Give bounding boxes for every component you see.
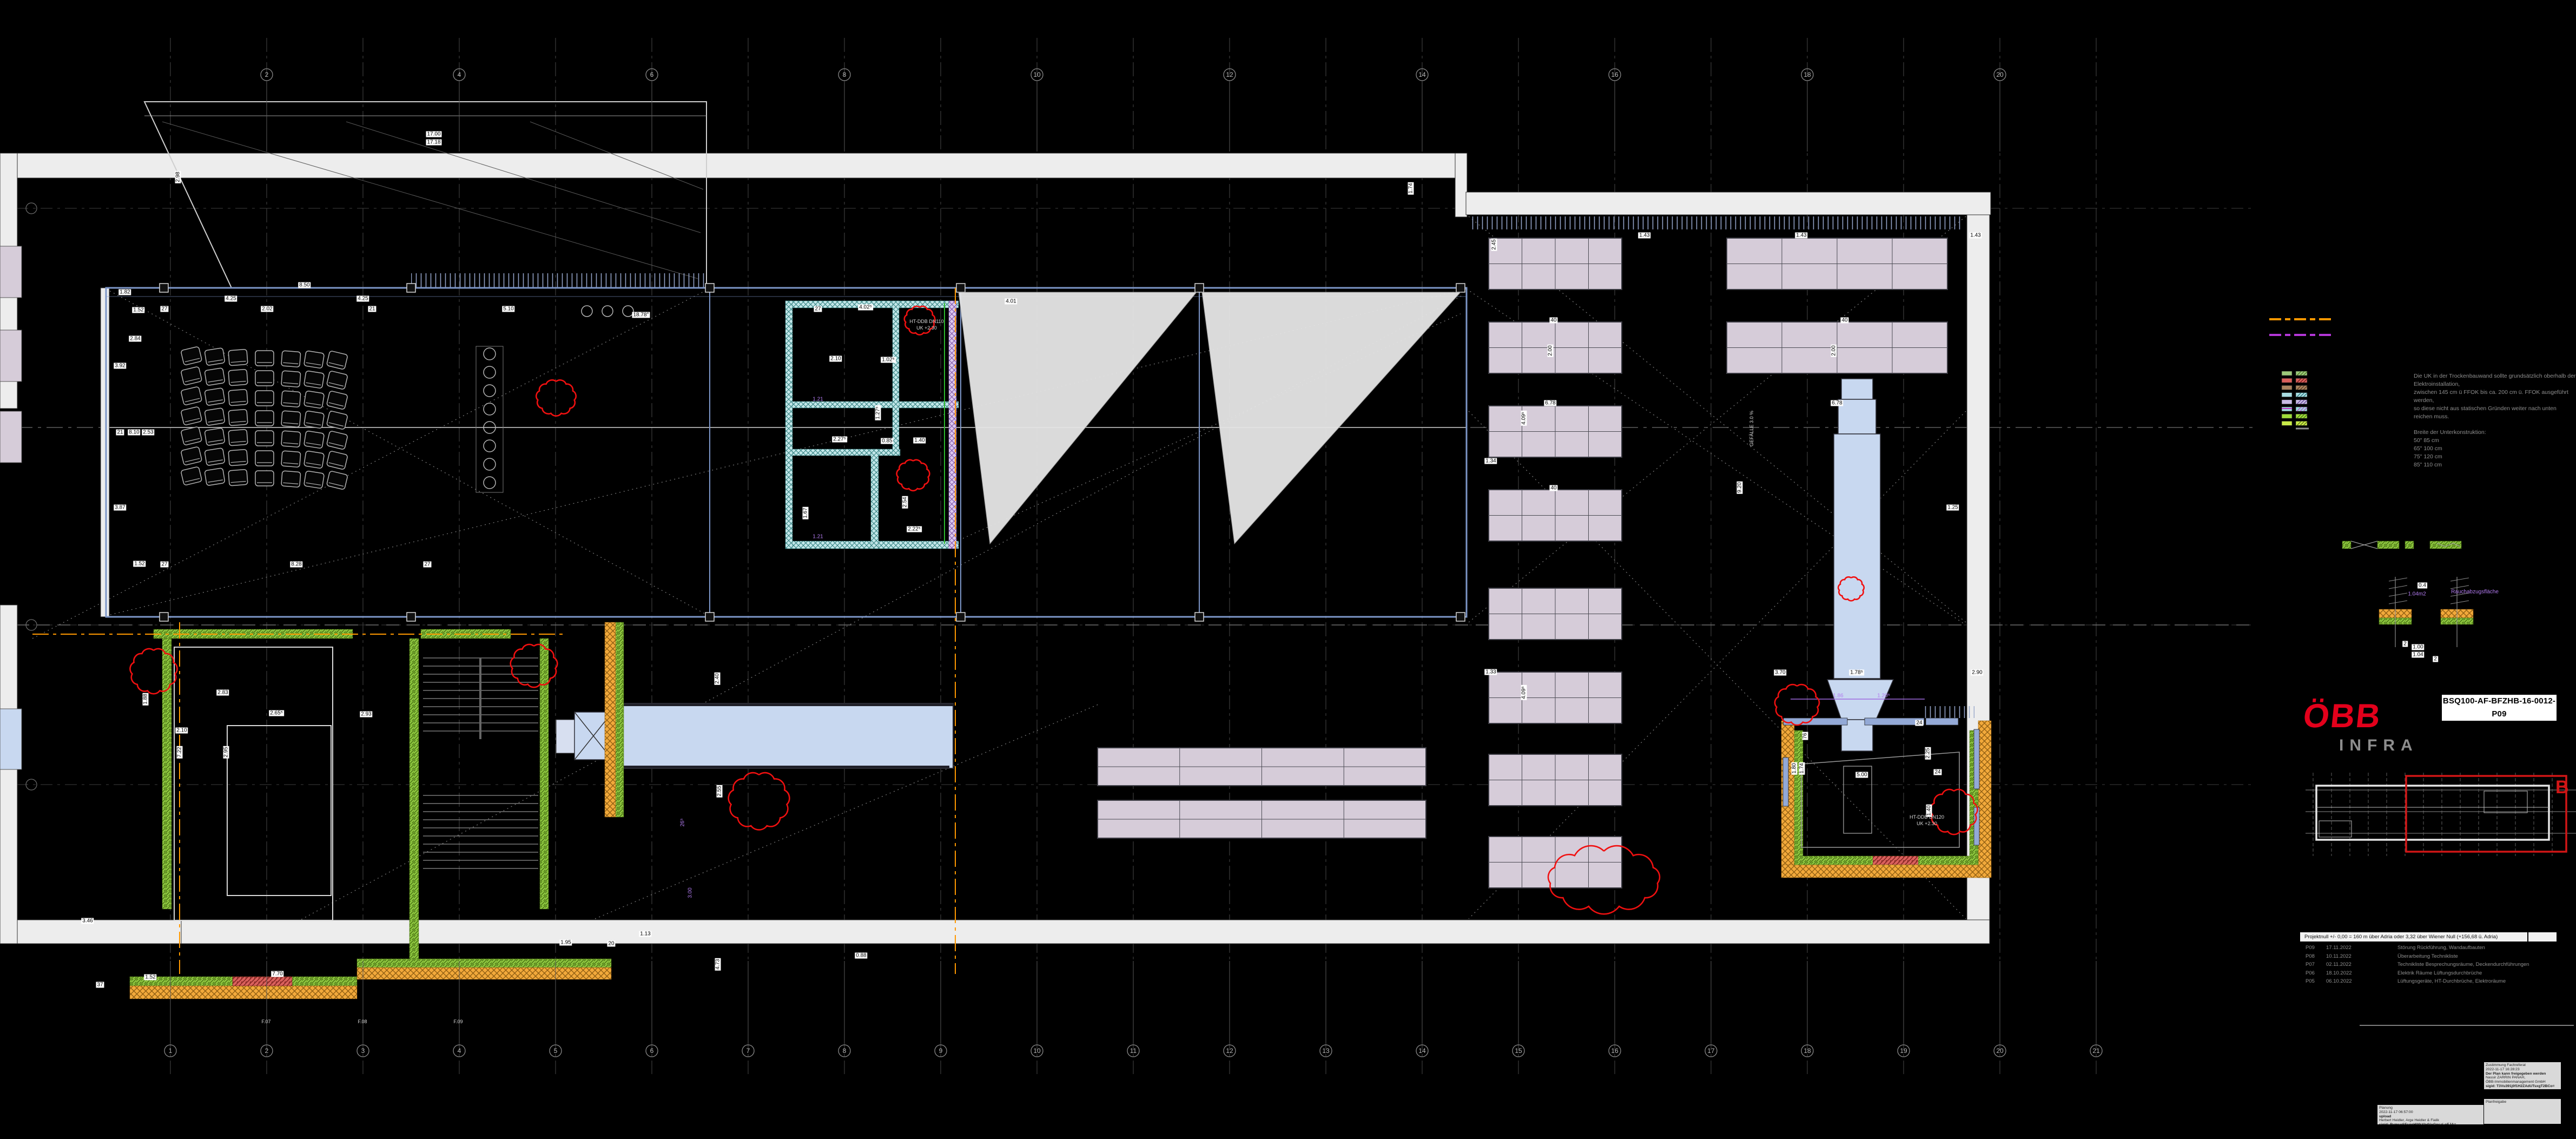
svg-text:15: 15 (1515, 1047, 1522, 1055)
svg-text:6: 6 (650, 1047, 654, 1055)
revision-cell: Technikliste Besprechungsräume, Deckendu… (2397, 960, 2560, 969)
revision-cell: P08 (2306, 952, 2326, 961)
revision-cell: Störung Rückführung, Wandaufbauten (2397, 944, 2560, 952)
note-line: Die UK in der Trockenbauwand sollte grun… (2414, 372, 2576, 389)
svg-text:18: 18 (1804, 71, 1811, 78)
sig-datetime: 2022-11-17 16:28:23 (2486, 1068, 2520, 1071)
svg-text:20: 20 (1996, 71, 2004, 78)
revision-row: P0618.10.2022Elektrik Räume Lüftungsdurc… (2306, 969, 2560, 978)
sig-title: Planung (2379, 1106, 2393, 1110)
svg-text:10: 10 (1033, 71, 1041, 78)
sig-id: sigid: T3Vu391j0f1H2ZAdUTsxgT2BCo= (2486, 1084, 2554, 1088)
revision-cell: 06.10.2022 (2326, 977, 2397, 986)
obb-infra-logo: ÖBB INFRA (2303, 697, 2433, 755)
substructure-width-item: 75" 120 cm (2414, 453, 2576, 461)
signature-fachreferat: Zustimmung Fachreferat 2022-11-17 16:28:… (2484, 1062, 2561, 1089)
svg-text:20: 20 (1996, 1047, 2004, 1055)
revision-row: P0506.10.2022Lüftungsgeräte, HT-Durchbrü… (2306, 977, 2560, 986)
svg-text:6: 6 (650, 71, 654, 78)
substructure-width-list: Breite der Unterkonstruktion: 50" 85 cm6… (2414, 429, 2576, 469)
svg-text:2: 2 (265, 1047, 269, 1055)
svg-text:18: 18 (1804, 1047, 1811, 1055)
revision-cell: 17.11.2022 (2326, 944, 2397, 952)
svg-text:8: 8 (843, 1047, 847, 1055)
svg-text:17: 17 (1707, 1047, 1715, 1055)
revision-header-box (2528, 932, 2557, 942)
obb-logo-text: ÖBB (2301, 697, 2383, 735)
svg-text:1: 1 (169, 1047, 173, 1055)
floor-plan-canvas: 1223445667889101011121213141415161617181… (0, 0, 2576, 1139)
cad-sheet: { "title_block": { "plan_number": "BSQ10… (0, 0, 2576, 1139)
revision-cell: P06 (2306, 969, 2326, 978)
svg-text:12: 12 (1226, 1047, 1233, 1055)
svg-text:8: 8 (843, 71, 847, 78)
revision-row: P0917.11.2022Störung Rückführung, Wandau… (2306, 944, 2560, 952)
revision-row: P0702.11.2022Technikliste Besprechungsrä… (2306, 960, 2560, 969)
drawing-sheet: 1223445667889101011121213141415161617181… (0, 0, 2576, 1139)
svg-text:12: 12 (1226, 71, 1233, 78)
svg-text:16: 16 (1611, 1047, 1619, 1055)
svg-text:2: 2 (265, 71, 269, 78)
svg-text:10: 10 (1033, 1047, 1041, 1055)
revision-cell: P09 (2306, 944, 2326, 952)
infra-logo-text: INFRA (2339, 736, 2433, 755)
titleblock-divider (2360, 1025, 2574, 1026)
construction-note: Die UK in der Trockenbauwand sollte grun… (2414, 372, 2576, 469)
sig-id: sigid: RvmsoSFsgqHWkYbdV+GnsaLpEJA= (2379, 1123, 2456, 1124)
svg-text:5: 5 (554, 1047, 558, 1055)
sig-datetime: 2022-11-17 06:57:00 (2379, 1110, 2413, 1114)
revision-cell: Elektrik Räume Lüftungsdurchbrüche (2397, 969, 2560, 978)
revision-cell: P05 (2306, 977, 2326, 986)
revision-cell: Lüftungsgeräte, HT-Durchbrüche, Elektror… (2397, 977, 2560, 986)
revision-cell: 18.10.2022 (2326, 969, 2397, 978)
svg-text:11: 11 (1130, 1047, 1137, 1055)
keyplan-section-label: B (2555, 777, 2569, 798)
substructure-width-item: 50" 85 cm (2414, 437, 2576, 445)
sig-title: Planfreigabe (2486, 1100, 2506, 1104)
sig-name: Herbert Heidler, Arge Heidler & Fialik (2379, 1118, 2439, 1122)
sig-org: ÖBB-Immobilienmanagement GmbH (2486, 1080, 2546, 1084)
substructure-width-item: 65" 100 cm (2414, 445, 2576, 453)
svg-text:14: 14 (1418, 71, 1426, 78)
svg-text:4: 4 (458, 1047, 461, 1055)
svg-text:13: 13 (1322, 1047, 1330, 1055)
projektnull-header: Projektnull +/- 0,00 = 160 m über Adria … (2300, 932, 2527, 942)
svg-text:21: 21 (2092, 1047, 2100, 1055)
signature-planung: Planung 2022-11-17 06:57:00 upload Herbe… (2377, 1105, 2483, 1124)
plan-number: BSQ100-AF-BFZHB-16-0012-P09 (2442, 695, 2557, 721)
list-title: Breite der Unterkonstruktion: (2414, 429, 2576, 437)
sig-action: upload (2379, 1115, 2391, 1118)
revision-table: P0917.11.2022Störung Rückführung, Wandau… (2306, 944, 2560, 986)
revision-cell: P07 (2306, 960, 2326, 969)
revision-cell: 10.11.2022 (2326, 952, 2397, 961)
note-line: so diese nicht aus statischen Gründen we… (2414, 405, 2576, 421)
sig-action: Der Plan kann freigegeben werden (2486, 1072, 2546, 1076)
auditorium-seating (181, 346, 348, 490)
sig-name: Nassir ZARRIN PANAH, (2486, 1076, 2525, 1079)
revision-row: P0810.11.2022Überarbeitung Technikliste (2306, 952, 2560, 961)
revision-cell: Überarbeitung Technikliste (2397, 952, 2560, 961)
substructure-width-item: 85" 110 cm (2414, 461, 2576, 469)
revision-cell: 02.11.2022 (2326, 960, 2397, 969)
svg-text:16: 16 (1611, 71, 1619, 78)
svg-text:19: 19 (1900, 1047, 1907, 1055)
svg-text:7: 7 (747, 1047, 750, 1055)
sig-title: Zustimmung Fachreferat (2486, 1063, 2526, 1067)
signature-planfreigabe: Planfreigabe (2484, 1099, 2561, 1124)
note-line: zwischen 145 cm ü FFOK bis ca. 200 cm ü.… (2414, 389, 2576, 405)
svg-text:4: 4 (458, 71, 461, 78)
svg-text:9: 9 (939, 1047, 943, 1055)
svg-text:14: 14 (1418, 1047, 1426, 1055)
svg-text:3: 3 (361, 1047, 365, 1055)
